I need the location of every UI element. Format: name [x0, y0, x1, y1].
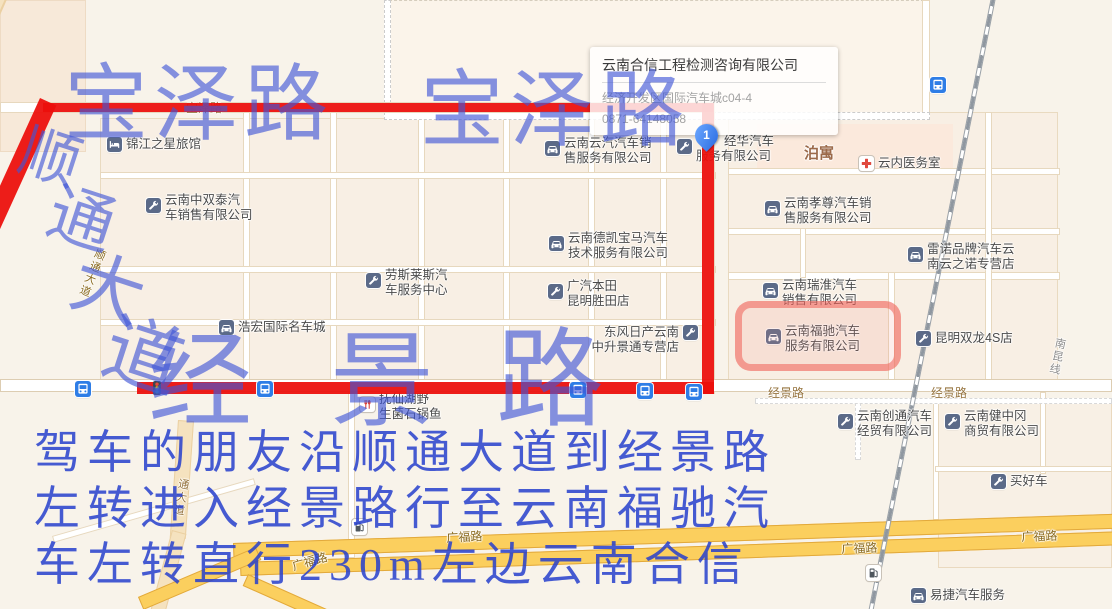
bus-stop-icon[interactable]	[686, 384, 702, 400]
annotation-jingjing-char: 经	[148, 331, 252, 435]
directions-line: 车左转直行230m左边云南合信	[34, 537, 776, 593]
annotation-jingjing-char: 景	[330, 331, 434, 435]
annotation-jingjing-char: 路	[496, 328, 604, 436]
annotation-baozelu-1: 宝泽路	[64, 64, 334, 148]
annotation-jingjinglu: 经景路	[148, 328, 604, 436]
annotation-baozelu-2: 宝泽路	[420, 70, 690, 154]
directions-line: 驾车的朋友沿顺通大道到经景路	[34, 425, 776, 481]
gas-station-icon[interactable]	[866, 565, 881, 581]
pin-number: 1	[695, 124, 718, 147]
bus-stop-icon[interactable]	[930, 77, 946, 93]
directions-line: 左转进入经景路行至云南福驰汽	[34, 481, 776, 537]
bus-stop-icon[interactable]	[637, 383, 653, 399]
bus-stop-icon[interactable]	[75, 381, 91, 397]
map-canvas[interactable]: 宝泽路经景路经景路广福路广福路广福路广福路南昆线通大道顺通大道泊寓 锦江之星旅馆…	[0, 0, 1112, 609]
annotation-directions: 驾车的朋友沿顺通大道到经景路左转进入经景路行至云南福驰汽车左转直行230m左边云…	[34, 425, 776, 593]
map-pin[interactable]: 1	[690, 119, 723, 152]
